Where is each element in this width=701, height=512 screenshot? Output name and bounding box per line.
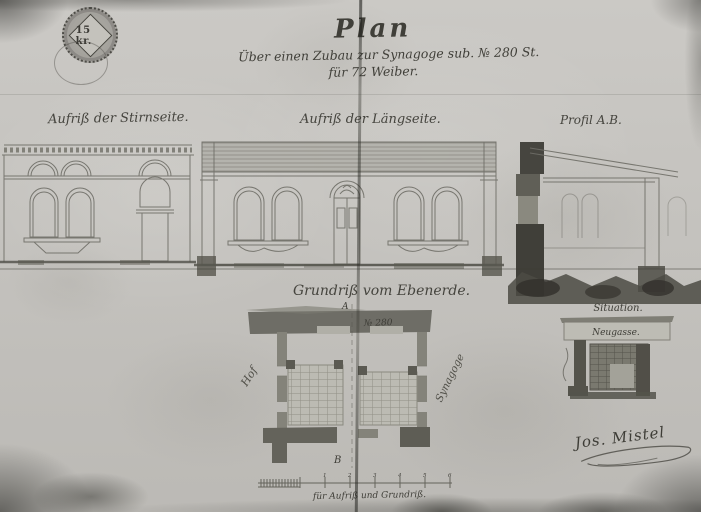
ground-plan-drawing: A B № 280 bbox=[246, 302, 436, 474]
front-elevation-label: Aufriß der Stirnseite. bbox=[48, 110, 189, 127]
document-title: Plan bbox=[237, 12, 507, 47]
front-elevation-drawing bbox=[0, 140, 196, 270]
long-elevation-drawing bbox=[194, 138, 504, 284]
revenue-stamp: 15 kr. bbox=[62, 7, 132, 85]
horizontal-fold-crease bbox=[0, 268, 701, 270]
section-drawing bbox=[508, 136, 701, 304]
section-mark-b: B bbox=[333, 455, 341, 466]
scale-caption: für Aufriß und Grundriß. bbox=[312, 490, 426, 502]
title-subtitle-2: für 72 Weiber. bbox=[238, 62, 508, 82]
scale-tick-2: 2 bbox=[347, 473, 352, 479]
street-label: Neugasse. bbox=[591, 328, 640, 338]
stamp-cancel-mark-icon bbox=[54, 41, 108, 85]
plan-sheet: 15 kr. Plan Über einen Zubau zur Synagog… bbox=[0, 0, 701, 512]
site-plan-drawing: Situation. Neugasse. bbox=[558, 298, 678, 404]
section-label: Profil A.B. bbox=[560, 113, 622, 127]
title-block: Plan Über einen Zubau zur Synagoge sub. … bbox=[237, 12, 508, 82]
ground-plan-label: Grundriß vom Ebenerde. bbox=[293, 283, 470, 299]
scale-tick-1: 1 bbox=[323, 473, 327, 479]
synagogue-annotation: Synagoge bbox=[433, 352, 467, 404]
scale-tick-3: 3 bbox=[373, 473, 377, 479]
long-elevation-label: Aufriß der Längseite. bbox=[300, 112, 441, 127]
section-mark-a: A bbox=[341, 302, 349, 312]
scale-tick-6: 6 bbox=[448, 473, 452, 479]
signature-block: Jos. Mistel bbox=[574, 418, 701, 478]
site-plan-label: Situation. bbox=[593, 303, 642, 314]
site-margin-note-icon bbox=[563, 348, 568, 381]
plan-house-number: № 280 bbox=[363, 318, 393, 329]
scale-tick-4: 4 bbox=[397, 473, 402, 479]
scale-tick-5: 5 bbox=[423, 473, 427, 479]
horizontal-fold-crease-2 bbox=[0, 94, 701, 95]
